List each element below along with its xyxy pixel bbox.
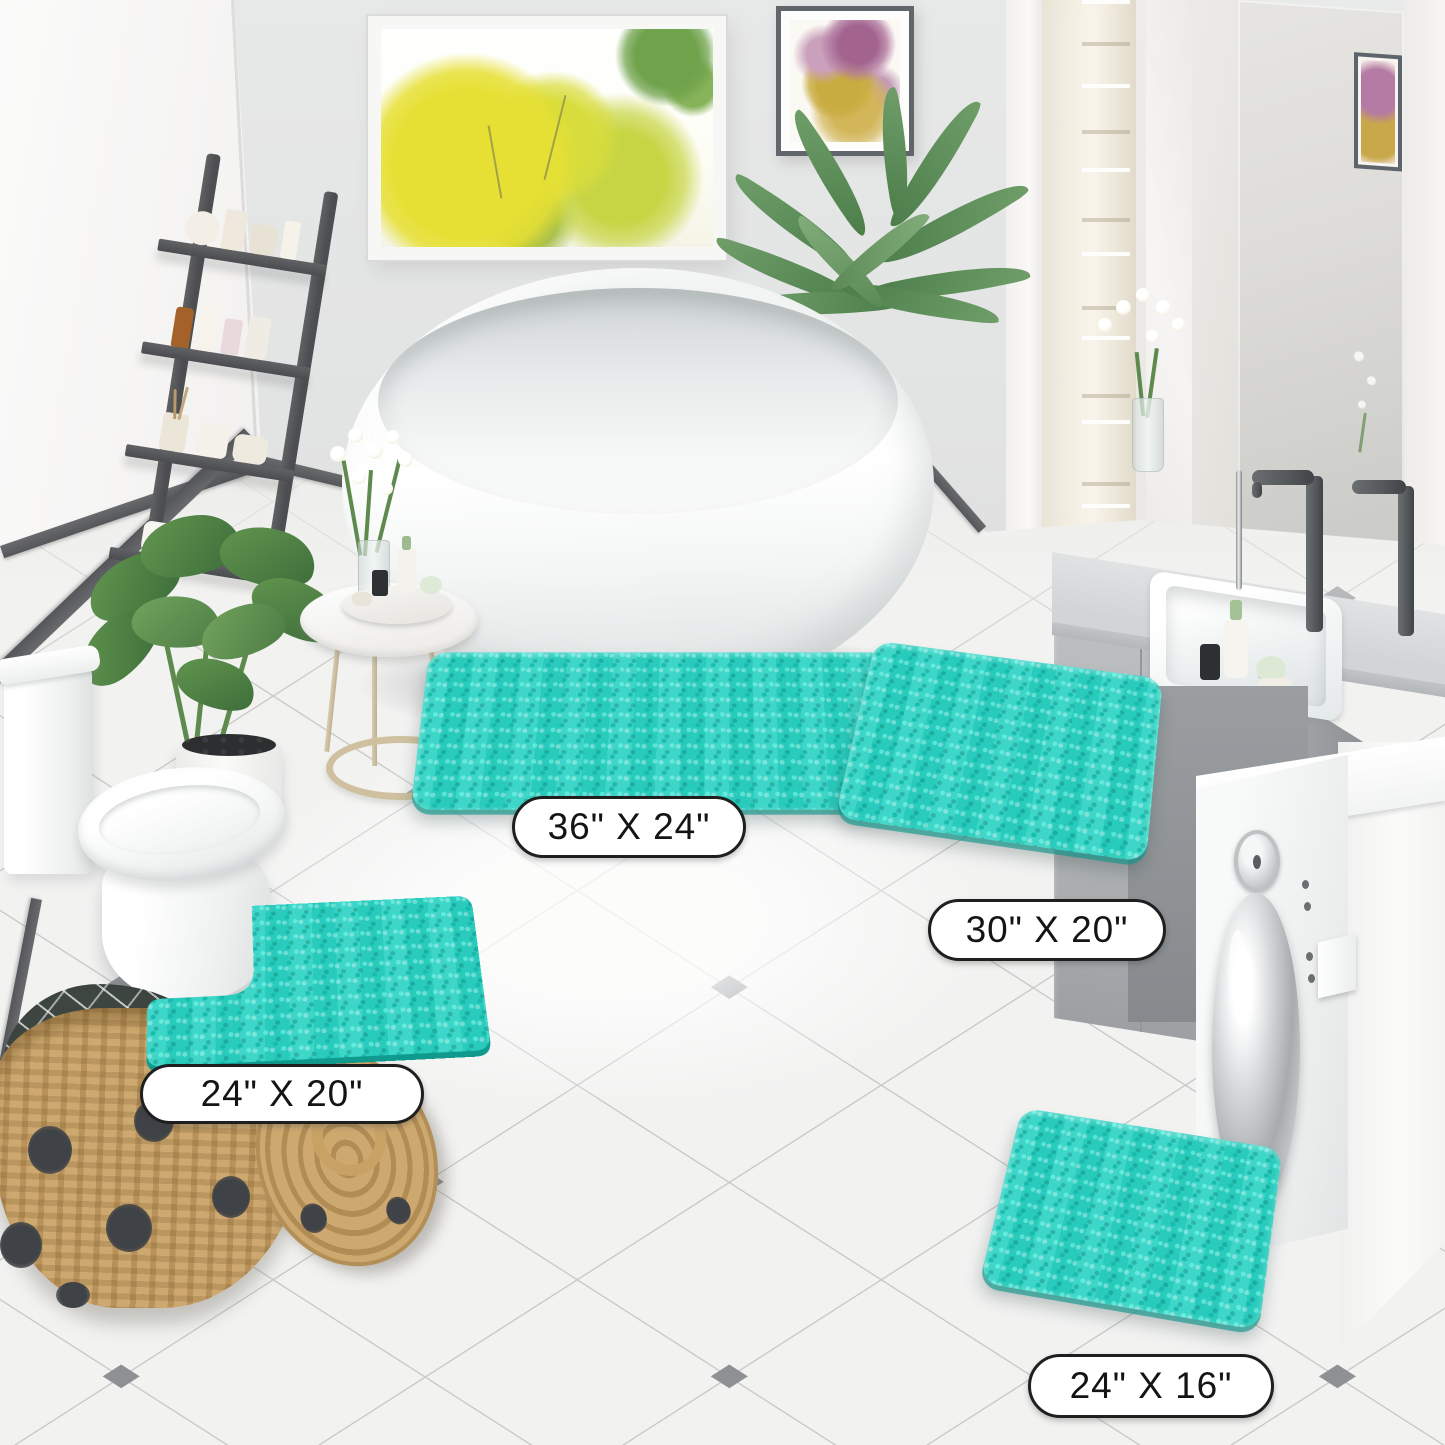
size-label-text: 36" X 24" <box>548 806 711 848</box>
washer-button <box>1302 880 1309 889</box>
pump-bottle-top <box>1230 600 1242 620</box>
pump-bottle-top <box>402 536 411 550</box>
gladiolus-flower <box>1146 330 1159 343</box>
chrome-riser <box>1236 470 1242 590</box>
toiletry-bottle <box>194 304 221 353</box>
window-view-trees <box>381 29 713 247</box>
toiletry-bottle <box>280 220 302 260</box>
bath-rug-36x24 <box>410 652 905 809</box>
gladiolus-flower <box>366 442 383 459</box>
tall-storage-cabinet <box>1042 0 1136 592</box>
pink-bottle <box>220 318 243 356</box>
washer-button <box>1304 902 1311 911</box>
cabinet-niches <box>1082 0 1130 592</box>
contour-rug-24x20 <box>146 896 492 1072</box>
washer-button <box>1306 952 1313 961</box>
size-label-text: 30" X 20" <box>966 909 1129 951</box>
brush <box>173 389 177 419</box>
washer-detergent-shelf <box>1318 934 1356 999</box>
size-label-36x24: 36" X 24" <box>512 796 746 858</box>
gladiolus-flower <box>386 430 400 444</box>
mirror-reflected-stem <box>1358 413 1367 453</box>
size-label-text: 24" X 16" <box>1070 1365 1233 1407</box>
toiletry-jar <box>196 421 231 459</box>
gladiolus-flower <box>352 470 366 484</box>
sink-faucet-body <box>1306 476 1323 632</box>
washer-door-glint <box>1228 930 1247 1024</box>
toiletry-bottle <box>220 209 248 252</box>
gladiolus-flower <box>380 482 393 495</box>
toiletry-jar <box>248 223 278 257</box>
gladiolus-flower <box>348 428 363 443</box>
sink-faucet-spout <box>1252 470 1314 485</box>
mirror-reflected-flower <box>1354 351 1364 362</box>
gladiolus-flower <box>1098 318 1112 332</box>
black-bottle <box>1200 644 1220 680</box>
gladiolus-flower <box>1156 300 1171 315</box>
size-label-24x16: 24" X 16" <box>1028 1354 1274 1418</box>
gladiolus-flower <box>1172 318 1185 331</box>
basket-spot <box>106 1204 152 1252</box>
contour-rug-surface <box>146 896 491 1068</box>
mirror-reflected-flower <box>1358 400 1366 409</box>
gladiolus-flower <box>330 446 346 462</box>
black-bottle <box>372 570 388 596</box>
gladiolus-flower <box>398 452 413 467</box>
size-label-text: 24" X 20" <box>201 1073 364 1115</box>
size-label-30x20: 30" X 20" <box>928 899 1166 961</box>
basket-spot <box>212 1176 250 1218</box>
washer-button <box>1308 974 1315 983</box>
gladiolus-flower <box>1116 300 1131 315</box>
size-label-24x20: 24" X 20" <box>140 1064 424 1124</box>
sink-faucet-tip <box>1252 482 1262 498</box>
pump-bottle <box>398 548 416 592</box>
gladiolus-flower <box>1136 288 1150 302</box>
basket-spot <box>56 1282 90 1308</box>
green-jar <box>420 576 442 594</box>
mirror-reflected-flower <box>1367 376 1376 386</box>
basket-spot <box>28 1126 72 1174</box>
pump-bottle <box>1224 620 1248 678</box>
toiletry-jar <box>183 209 222 248</box>
bathroom-product-photo: 36" X 24" 30" X 20" 24" X 20" 24" X 16" <box>0 0 1445 1445</box>
folded-towel <box>231 433 269 466</box>
counter-vase <box>1132 398 1164 472</box>
mirror-reflected-art <box>1361 60 1395 164</box>
toiletry-bottle <box>244 316 272 361</box>
basket-spot <box>0 1222 42 1268</box>
toiletry-jar <box>352 592 372 606</box>
mirror-reflected-art-frame <box>1354 52 1402 171</box>
pot-pebbles <box>182 734 276 756</box>
basket-spot <box>297 1200 331 1237</box>
window <box>368 16 726 260</box>
washer-dial <box>1234 830 1280 892</box>
reflected-faucet-body <box>1398 486 1414 636</box>
reflected-faucet-spout <box>1352 480 1406 494</box>
basket-spot <box>383 1194 414 1228</box>
